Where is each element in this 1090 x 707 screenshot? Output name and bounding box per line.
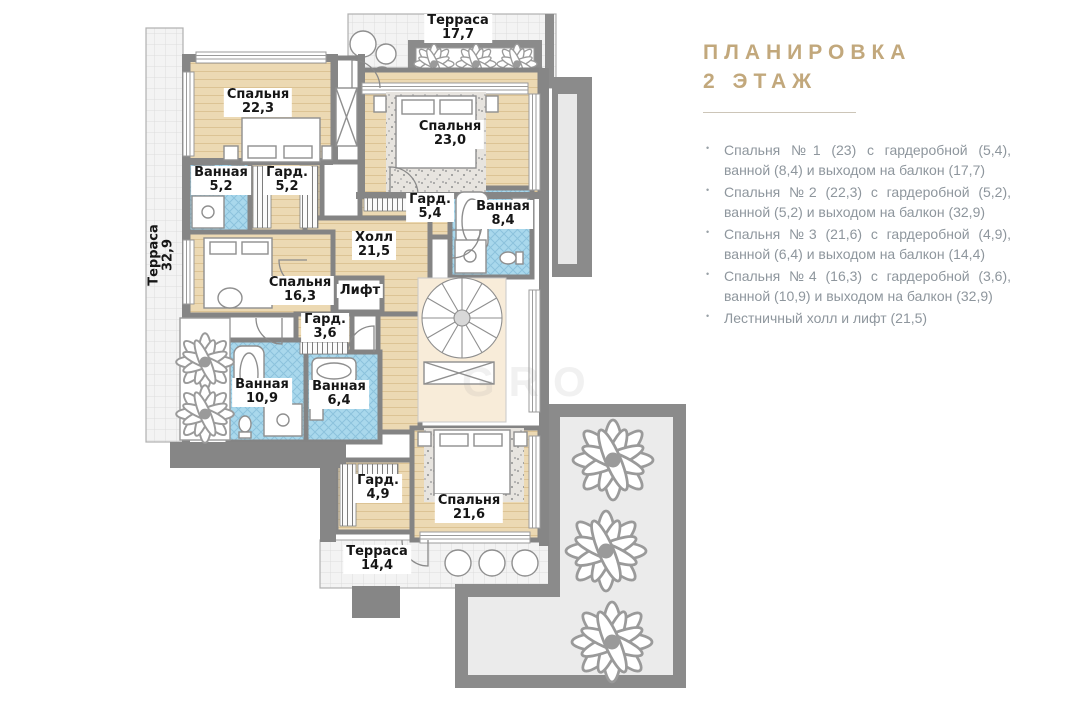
legend-item: •Спальня №1 (23) с гардеробной (5,4), ва… xyxy=(703,141,1011,180)
plant-icon xyxy=(176,333,234,391)
room-label-bedroom-22-3: Спальня22,3 xyxy=(224,88,292,117)
bullet-icon: • xyxy=(706,265,709,285)
bullet-icon: • xyxy=(706,223,709,243)
room-label-wardrobe-5-4: Гард.5,4 xyxy=(406,193,454,222)
plant-icon xyxy=(566,511,646,591)
room-label-wardrobe-4-9: Гард.4,9 xyxy=(354,474,402,503)
bullet-icon: • xyxy=(706,307,709,327)
legend-item: •Лестничный холл и лифт (21,5) xyxy=(703,309,1011,329)
room-label-hall-21-5: Холл21,5 xyxy=(352,231,396,260)
title-divider xyxy=(703,112,856,113)
legend-item: •Спальня №3 (21,6) с гардеробной (4,9), … xyxy=(703,225,1011,264)
chairs-icon xyxy=(445,550,538,576)
info-panel: ПЛАНИРОВКА 2 ЭТАЖ •Спальня №1 (23) с гар… xyxy=(703,38,1011,332)
bed-icon xyxy=(418,428,527,502)
room-label-bathroom-8-4: Ванная8,4 xyxy=(473,200,533,229)
room-label-wardrobe-3-6: Гард.3,6 xyxy=(301,313,349,342)
room-label-bedroom-23-0: Спальня23,0 xyxy=(416,120,484,149)
storage-icon xyxy=(336,88,357,146)
room-legend: •Спальня №1 (23) с гардеробной (5,4), ва… xyxy=(703,141,1011,329)
watermark: GRO xyxy=(462,358,600,406)
title-line-2: 2 ЭТАЖ xyxy=(703,67,1011,96)
room-label-lift: Лифт xyxy=(337,284,383,298)
room-label-wardrobe-5-2: Гард.5,2 xyxy=(263,166,311,195)
bullet-icon: • xyxy=(706,181,709,201)
balcony-right xyxy=(552,77,592,277)
spiral-staircase-icon xyxy=(422,278,502,358)
room-label-terrace-17-7: Терраса17,7 xyxy=(424,14,492,43)
shower-icon xyxy=(264,404,302,436)
page-title: ПЛАНИРОВКА 2 ЭТАЖ xyxy=(703,38,1011,96)
plant-icon xyxy=(176,385,234,443)
shower-icon xyxy=(192,196,224,228)
room-label-terrace-14-4: Терраса14,4 xyxy=(343,545,411,574)
page: Терраса17,7 Спальня22,3 Ванная5,2 Гард.5… xyxy=(0,0,1090,707)
room-label-bathroom-10-9: Ванная10,9 xyxy=(232,378,292,407)
room-label-bathroom-5-2: Ванная5,2 xyxy=(191,166,251,195)
corridor xyxy=(378,314,420,432)
room-label-bedroom-16-3: Спальня16,3 xyxy=(266,276,334,305)
legend-item: •Спальня №2 (22,3) с гардеробной (5,2), … xyxy=(703,183,1011,222)
legend-item: •Спальня №4 (16,3) с гардеробной (3,6), … xyxy=(703,267,1011,306)
room-label-bathroom-6-4: Ванная6,4 xyxy=(309,380,369,409)
plant-icon xyxy=(572,602,652,682)
bullet-icon: • xyxy=(706,139,709,159)
plant-icon xyxy=(573,420,653,500)
room-label-terrace-32-9: Терраса32,9 xyxy=(148,221,177,289)
toilet-icon xyxy=(239,416,251,438)
toilet-icon xyxy=(500,252,523,264)
bed-icon xyxy=(204,238,272,308)
title-line-1: ПЛАНИРОВКА xyxy=(703,38,1011,67)
room-label-bedroom-21-6: Спальня21,6 xyxy=(435,494,503,523)
